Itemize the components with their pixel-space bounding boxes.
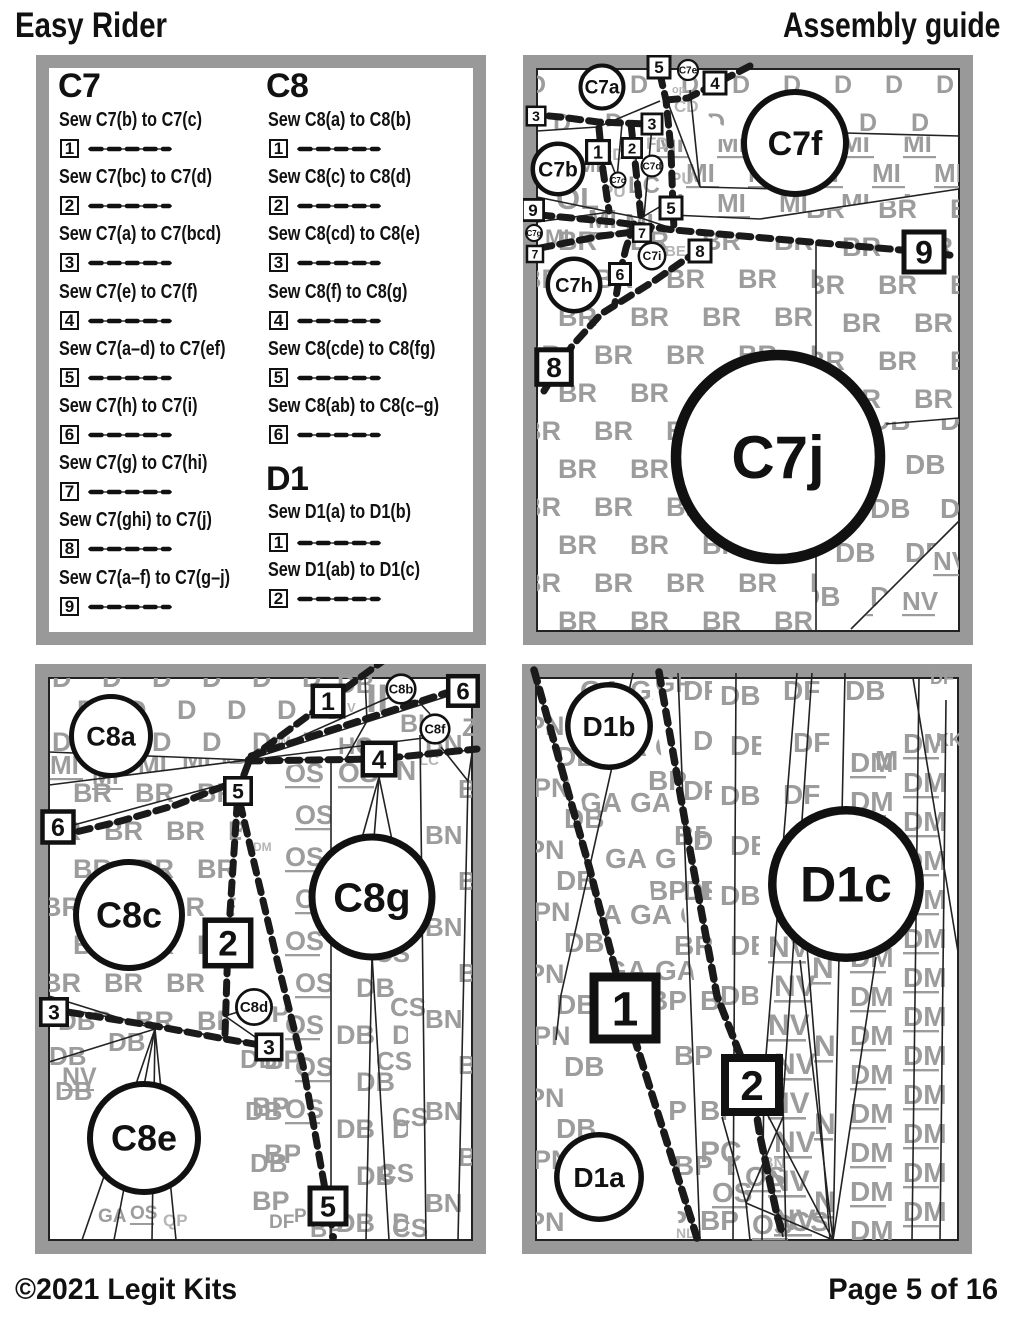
svg-text:BE: BE bbox=[665, 243, 686, 260]
svg-text:M: M bbox=[875, 745, 898, 776]
svg-text:DM: DM bbox=[903, 1040, 947, 1071]
svg-text:BR: BR bbox=[104, 968, 143, 998]
svg-text:C8g: C8g bbox=[333, 874, 410, 920]
svg-text:D: D bbox=[885, 71, 903, 99]
svg-text:C7f: C7f bbox=[768, 125, 823, 163]
svg-text:P: P bbox=[294, 1206, 307, 1227]
svg-text:C7j: C7j bbox=[731, 424, 824, 491]
svg-text:Z: Z bbox=[462, 714, 477, 742]
svg-text:NV: NV bbox=[62, 1063, 97, 1091]
svg-text:D: D bbox=[202, 727, 222, 757]
svg-text:BN: BN bbox=[425, 1096, 463, 1126]
svg-text:2: 2 bbox=[628, 140, 636, 157]
svg-text:BP: BP bbox=[648, 875, 687, 906]
svg-text:D1c: D1c bbox=[800, 857, 892, 913]
svg-text:DF: DF bbox=[269, 1212, 294, 1233]
svg-text:3: 3 bbox=[648, 117, 657, 134]
svg-text:PN: PN bbox=[533, 1021, 571, 1051]
svg-text:BR: BR bbox=[558, 530, 597, 560]
svg-text:4: 4 bbox=[372, 744, 387, 774]
svg-text:BR: BR bbox=[702, 302, 741, 332]
svg-text:5: 5 bbox=[654, 58, 663, 77]
svg-text:BR: BR bbox=[666, 340, 705, 370]
svg-text:N: N bbox=[814, 1030, 836, 1063]
svg-text:CS: CS bbox=[378, 1158, 414, 1188]
svg-text:BR: BR bbox=[914, 384, 953, 414]
svg-text:DB: DB bbox=[245, 1096, 283, 1126]
svg-text:DB: DB bbox=[905, 449, 945, 480]
svg-text:D: D bbox=[277, 695, 297, 725]
svg-text:BN: BN bbox=[425, 820, 463, 850]
svg-text:C8e: C8e bbox=[111, 1118, 177, 1159]
svg-text:6: 6 bbox=[51, 814, 65, 842]
svg-text:BR: BR bbox=[166, 968, 205, 998]
svg-text:C8f: C8f bbox=[425, 722, 447, 737]
svg-text:DM: DM bbox=[850, 1176, 894, 1207]
svg-text:3: 3 bbox=[48, 1002, 60, 1025]
svg-text:6: 6 bbox=[456, 679, 469, 706]
svg-text:BR: BR bbox=[630, 378, 669, 408]
svg-text:9: 9 bbox=[915, 235, 933, 271]
svg-text:DM: DM bbox=[903, 1118, 947, 1149]
svg-text:C7g: C7g bbox=[526, 229, 541, 238]
svg-text:DM: DM bbox=[903, 1001, 947, 1032]
svg-text:D: D bbox=[227, 695, 247, 725]
svg-text:DM: DM bbox=[903, 806, 947, 837]
svg-text:CS: CS bbox=[376, 1046, 412, 1076]
svg-text:4: 4 bbox=[710, 74, 720, 93]
svg-text:BR: BR bbox=[914, 308, 953, 338]
svg-text:1: 1 bbox=[612, 983, 639, 1036]
svg-text:GA: GA bbox=[605, 843, 647, 874]
svg-text:D: D bbox=[630, 71, 648, 99]
svg-text:D: D bbox=[152, 727, 172, 757]
svg-text:5: 5 bbox=[232, 781, 244, 804]
svg-text:C8b: C8b bbox=[389, 682, 414, 697]
svg-text:N: N bbox=[814, 1186, 836, 1219]
svg-text:C7a: C7a bbox=[585, 78, 620, 99]
svg-text:D1b: D1b bbox=[583, 711, 636, 742]
svg-text:BR: BR bbox=[774, 302, 813, 332]
svg-text:OS: OS bbox=[285, 1094, 324, 1124]
svg-text:CS: CS bbox=[392, 1102, 428, 1132]
svg-text:DF: DF bbox=[793, 727, 830, 758]
svg-text:NV: NV bbox=[902, 586, 939, 616]
svg-text:BR: BR bbox=[558, 454, 597, 484]
svg-text:BR: BR bbox=[594, 492, 633, 522]
svg-text:BN: BN bbox=[425, 1004, 463, 1034]
svg-text:DB: DB bbox=[564, 1051, 604, 1082]
svg-text:DB: DB bbox=[720, 980, 760, 1011]
svg-text:DB: DB bbox=[720, 880, 760, 911]
svg-text:MI: MI bbox=[717, 188, 746, 218]
svg-text:MI: MI bbox=[934, 158, 963, 188]
svg-text:C7e: C7e bbox=[679, 66, 698, 77]
svg-text:D: D bbox=[834, 71, 852, 99]
svg-text:BR: BR bbox=[166, 816, 205, 846]
svg-text:D: D bbox=[177, 695, 197, 725]
svg-text:C7d: C7d bbox=[643, 162, 662, 173]
svg-text:BR: BR bbox=[630, 454, 669, 484]
svg-text:CS: CS bbox=[390, 992, 426, 1022]
svg-text:C8a: C8a bbox=[86, 722, 137, 752]
svg-text:2: 2 bbox=[218, 925, 237, 964]
svg-text:DB: DB bbox=[720, 780, 760, 811]
svg-text:KK: KK bbox=[936, 730, 962, 750]
svg-text:3: 3 bbox=[532, 108, 540, 124]
svg-text:5: 5 bbox=[320, 1191, 336, 1223]
svg-text:2: 2 bbox=[740, 1062, 763, 1109]
svg-text:DM: DM bbox=[903, 767, 947, 798]
svg-text:DF: DF bbox=[783, 675, 820, 706]
svg-text:BR: BR bbox=[738, 264, 777, 294]
svg-text:1: 1 bbox=[593, 142, 603, 162]
svg-text:3: 3 bbox=[263, 1037, 275, 1060]
svg-text:DB: DB bbox=[845, 675, 885, 706]
svg-text:DM: DM bbox=[903, 1079, 947, 1110]
svg-text:6: 6 bbox=[616, 267, 625, 284]
svg-text:OS: OS bbox=[295, 968, 334, 998]
svg-text:BR: BR bbox=[738, 568, 777, 598]
svg-text:PN: PN bbox=[533, 897, 571, 927]
svg-text:8: 8 bbox=[695, 242, 704, 261]
svg-text:GA: GA bbox=[98, 1206, 127, 1227]
svg-text:D: D bbox=[936, 71, 954, 99]
svg-text:DB: DB bbox=[250, 1148, 288, 1178]
svg-text:DB: DB bbox=[336, 1020, 375, 1050]
svg-text:BR: BR bbox=[878, 346, 917, 376]
svg-text:D1a: D1a bbox=[573, 1162, 625, 1193]
svg-text:C7b: C7b bbox=[538, 158, 578, 181]
svg-text:OS: OS bbox=[295, 800, 334, 830]
svg-text:BR: BR bbox=[594, 416, 633, 446]
svg-text:C7i: C7i bbox=[643, 249, 662, 263]
svg-text:BR: BR bbox=[842, 308, 881, 338]
svg-text:DF: DF bbox=[930, 668, 954, 688]
svg-text:DM: DM bbox=[850, 1137, 894, 1168]
svg-text:C7c: C7c bbox=[611, 176, 626, 185]
svg-text:BR: BR bbox=[666, 568, 705, 598]
svg-text:DB: DB bbox=[720, 680, 760, 711]
svg-text:7: 7 bbox=[532, 248, 539, 262]
svg-text:8: 8 bbox=[546, 352, 562, 383]
svg-text:BR: BR bbox=[630, 530, 669, 560]
svg-text:9: 9 bbox=[528, 201, 537, 220]
svg-text:C8d: C8d bbox=[240, 999, 268, 1016]
svg-text:DM: DM bbox=[903, 962, 947, 993]
svg-text:C8c: C8c bbox=[96, 895, 162, 936]
svg-text:5: 5 bbox=[666, 199, 675, 218]
svg-text:BR: BR bbox=[594, 568, 633, 598]
svg-text:1: 1 bbox=[321, 688, 335, 716]
svg-text:DM: DM bbox=[850, 1098, 894, 1129]
svg-text:BR: BR bbox=[630, 302, 669, 332]
svg-text:BN: BN bbox=[425, 1188, 463, 1218]
svg-text:D: D bbox=[911, 109, 929, 137]
svg-text:BR: BR bbox=[594, 340, 633, 370]
svg-text:DM: DM bbox=[253, 840, 272, 854]
svg-text:DM: DM bbox=[850, 1020, 894, 1051]
svg-text:C7h: C7h bbox=[555, 275, 593, 297]
svg-text:CS: CS bbox=[392, 1213, 428, 1243]
svg-text:OS: OS bbox=[130, 1203, 157, 1224]
svg-text:op: op bbox=[672, 84, 686, 96]
svg-text:7: 7 bbox=[638, 225, 646, 241]
svg-text:MI: MI bbox=[872, 158, 901, 188]
